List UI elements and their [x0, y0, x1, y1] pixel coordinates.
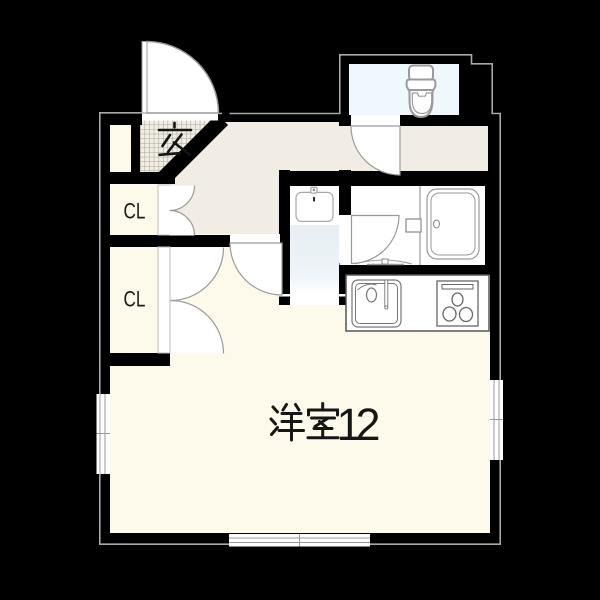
svg-text:CL: CL: [124, 199, 146, 224]
svg-text:CL: CL: [124, 287, 146, 312]
svg-text:12: 12: [337, 399, 379, 450]
